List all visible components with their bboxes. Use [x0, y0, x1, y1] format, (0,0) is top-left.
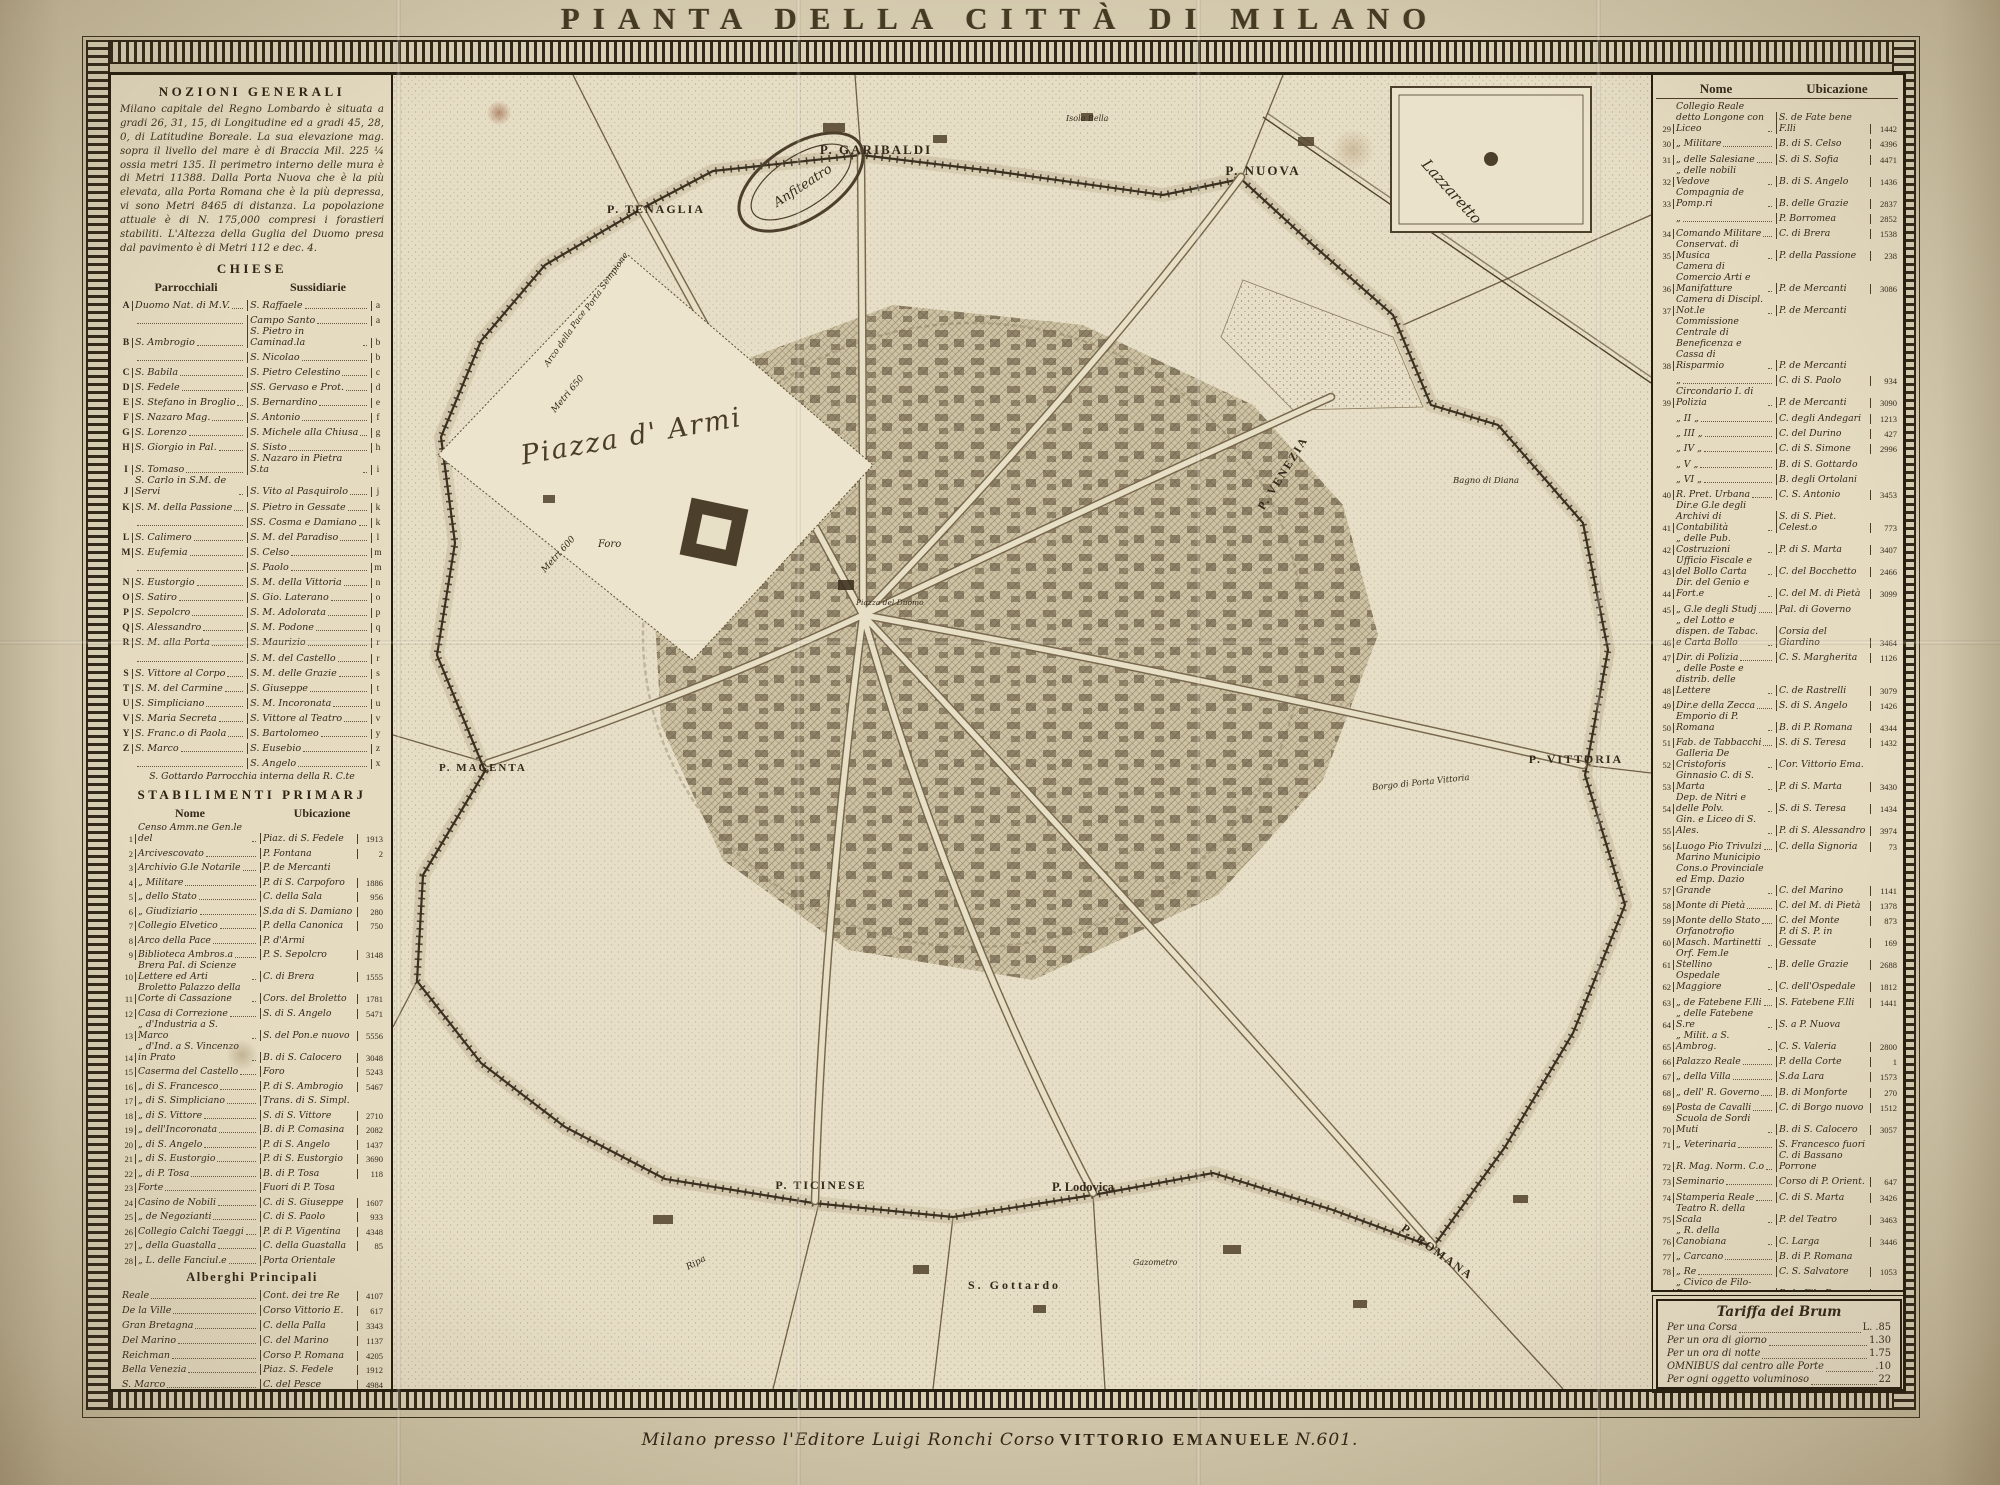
dotted-leader [1768, 615, 1772, 646]
stabilimento-nome: „ V „ [1676, 459, 1698, 470]
stabilimento-civico: 3079 [1870, 686, 1898, 696]
chiese-sussidiaria: S. M. Podone [250, 622, 314, 633]
albergo-civico: 617 [357, 1306, 384, 1316]
stabilimento-nome: „ della Guastalla [138, 1240, 216, 1251]
tariffa-row: Per un ora di giorno 1.30 [1667, 1335, 1891, 1348]
chiese-row: O S. Satiro S. Gio. Laterano o [120, 588, 384, 603]
stabilimento-civico: 3090 [1870, 398, 1898, 408]
stabilimento-ubicazione: C. del Durino [1776, 428, 1870, 439]
row-number: 59 [1656, 916, 1674, 926]
row-number: 68 [1656, 1088, 1674, 1098]
stabilimento-nome: Scuola de Sordi Muti [1676, 1113, 1766, 1135]
dotted-leader [1733, 1071, 1772, 1080]
row-number: 22 [120, 1169, 136, 1179]
chiese-subkey: t [371, 684, 384, 694]
map-label-lodovica-gate: P. Lodovica [1052, 1180, 1115, 1194]
stabilimento-ubicazione: P. de Mercanti [260, 862, 357, 873]
albergo-ubicazione: C. della Palla [260, 1320, 357, 1331]
right-row: 40 R. Pret. Urbana C. S. Antonio 3453 [1656, 485, 1898, 500]
stabilimento-nome: Orf. Fem.le Stellino [1676, 948, 1766, 970]
stabilimento-ubicazione: C. S. Antonio [1776, 489, 1870, 500]
chiese-subkey: p [371, 608, 384, 618]
stabilimenti-row: 27 „ della Guastalla C. della Guastalla … [120, 1237, 384, 1252]
stabilimento-ubicazione: C. della Guastalla [260, 1240, 357, 1251]
stabilimento-ubicazione: C. de Rastrelli [1776, 685, 1870, 696]
stabilimento-ubicazione: C. del Marino [1776, 885, 1870, 896]
stabilimento-nome: „ de Fatebene F.lli [1676, 997, 1762, 1008]
chiese-row: V S. Maria Secreta S. Vittore al Teatro … [120, 709, 384, 724]
tariffa-label: Per ogni oggetto voluminoso [1667, 1374, 1809, 1387]
stabilimento-nome: „ dello Stato [138, 891, 197, 902]
stabilimenti-row: 4 „ Militare P. di S. Carpoforo 1886 [120, 873, 384, 888]
stabilimento-ubicazione: S. a P. Nuova [1776, 1019, 1870, 1030]
stabilimento-civico: 1434 [1870, 804, 1898, 814]
stabilimenti-table: 1 Censo Amm.ne Gen.le del Piaz. di S. Fe… [120, 822, 384, 1266]
stabilimento-ubicazione: C. di S. Simone [1776, 443, 1870, 454]
stabilimento-ubicazione: C. S. Valeria [1776, 1041, 1870, 1052]
stabilimento-civico: 2800 [1870, 1042, 1898, 1052]
dotted-leader [213, 935, 256, 944]
chiese-parrocchiale: S. Calimero [135, 532, 192, 543]
stabilimento-civico: 3407 [1870, 545, 1898, 555]
dotted-leader [252, 960, 256, 980]
stabilimento-ubicazione: C. del M. di Pietà [1776, 900, 1870, 911]
right-row: 51 Fab. de Tabbacchi S. di S. Teresa 143… [1656, 733, 1898, 748]
dotted-leader [178, 1335, 256, 1344]
stabilimento-ubicazione: P. Borromea [1776, 213, 1870, 224]
dotted-leader [339, 668, 367, 677]
chiese-parrocchiale: S. Marco [135, 743, 179, 754]
right-row: 62 Ospedale Maggiore C. dell'Ospedale 18… [1656, 970, 1898, 992]
dotted-leader [342, 367, 367, 376]
stabilimento-civico: 1436 [1870, 177, 1898, 187]
dotted-leader [1768, 294, 1772, 314]
row-number: 32 [1656, 177, 1674, 187]
chiese-row: J S. Carlo in S.M. de Servi S. Vito al P… [120, 475, 384, 497]
dotted-leader [1768, 577, 1772, 597]
dotted-leader [1752, 489, 1772, 498]
stabilimento-nome: „ Militare [138, 877, 183, 888]
row-number: 14 [120, 1053, 136, 1063]
dotted-leader [1700, 459, 1772, 468]
stabilimento-civico: 1812 [1870, 982, 1898, 992]
dotted-leader [199, 891, 256, 900]
stabilimento-ubicazione: P. de Mercanti [1776, 283, 1870, 294]
chiese-subkey: z [371, 744, 384, 754]
dotted-leader [1768, 770, 1772, 790]
dotted-leader [195, 1320, 256, 1329]
dotted-leader [240, 1066, 256, 1075]
row-number: 72 [1656, 1162, 1674, 1172]
chiese-sussidiaria: S. M. Adolorata [250, 607, 326, 618]
chiese-subkey: k [371, 518, 384, 528]
row-number: 23 [120, 1183, 136, 1193]
dotted-leader [346, 382, 367, 391]
dotted-leader [204, 1139, 256, 1148]
row-number: 33 [1656, 199, 1674, 209]
albergo-ubicazione: Piaz. S. Fedele [260, 1364, 357, 1375]
albergo-row: De la Ville Corso Vittorio E. 617 [120, 1301, 384, 1316]
row-number: 73 [1656, 1177, 1674, 1187]
chiese-parrocchiale: S. Vittore al Corpo [135, 668, 225, 679]
stabilimenti-row: 22 „ di P. Tosa B. di P. Tosa 118 [120, 1164, 384, 1179]
chiese-sussidiaria: S. Bernardino [250, 397, 317, 408]
right-row: „ C. di S. Paolo 934 [1656, 371, 1898, 386]
dotted-leader [1768, 316, 1772, 369]
dotted-leader [1768, 711, 1772, 731]
stabilimento-ubicazione: B. delle Grazie [1776, 959, 1870, 970]
chiese-subkey: x [371, 759, 384, 769]
chiese-key: N [120, 578, 133, 588]
right-row: „ P. Borromea 2852 [1656, 209, 1898, 224]
stabilimento-nome: Censo Amm.ne Gen.le del [138, 822, 250, 844]
chiese-row: B S. Ambrogio S. Pietro in Caminad.la b [120, 326, 384, 348]
chiese-sussidiaria: S. Vito al Pasquirolo [250, 486, 348, 497]
stabilimento-ubicazione: S. di S. Teresa [1776, 737, 1870, 748]
chiese-sussidiaria: S. Michele alla Chiusa [250, 427, 358, 438]
dotted-leader [237, 397, 243, 406]
chiese-key: E [120, 398, 133, 408]
frame-band-left [86, 40, 110, 1410]
right-row: 36 Camera di Comercio Arti e Manifatture… [1656, 261, 1898, 294]
chiese-table: A Duomo Nat. di M.V. S. Raffaele a Campo… [120, 296, 384, 770]
dotted-leader [229, 1255, 256, 1264]
stabilimento-civico: 2082 [357, 1125, 384, 1135]
right-row: 69 Posta de Cavalli C. di Borgo nuovo 15… [1656, 1098, 1898, 1113]
right-row: „ III „ C. del Durino 427 [1656, 424, 1898, 439]
tariffa-label: Per una Corsa [1667, 1322, 1737, 1335]
dotted-leader [1768, 239, 1772, 259]
stabilimento-ubicazione: P. del Teatro [1776, 1214, 1870, 1225]
chiese-subkey: m [371, 563, 384, 573]
chiese-subkey: h [371, 443, 384, 453]
row-number: 55 [1656, 826, 1674, 836]
row-number: 77 [1656, 1252, 1674, 1262]
row-number: 1 [120, 834, 136, 844]
right-row: 67 „ della Villa S.da Lara 1573 [1656, 1067, 1898, 1082]
right-row: 56 Luogo Pio Trivulzi C. della Signoria … [1656, 836, 1898, 851]
right-row: 39 Circondario I. di Polizia P. de Merca… [1656, 386, 1898, 408]
stabilimento-ubicazione: S. Francesco fuori [1776, 1139, 1870, 1150]
dotted-leader [206, 698, 243, 707]
map-label-magenta-gate: P. MAGENTA [439, 762, 527, 774]
stabilimento-civico: 1913 [357, 834, 384, 844]
tariffa-value: .10 [1875, 1361, 1891, 1374]
right-row: 66 Palazzo Reale P. della Corte 1 [1656, 1052, 1898, 1067]
stabilimenti-row: 15 Caserma del Castello Foro 5243 [120, 1063, 384, 1078]
dotted-leader [350, 486, 367, 495]
stabilimento-ubicazione: Porta Orientale [260, 1255, 357, 1266]
stabilimento-civico: 1141 [1870, 886, 1898, 896]
dotted-leader [188, 1364, 256, 1373]
chiese-subkey: a [371, 301, 384, 311]
stabilimenti-column-headers: Nome Ubicazione [120, 806, 384, 821]
imprint-corso: VITTORIO EMANUELE [1060, 1430, 1292, 1449]
dotted-leader [1768, 814, 1772, 834]
chiese-parrocchiale: S. Satiro [135, 592, 177, 603]
stabilimento-nome: Camera di Discipl. Not.le [1676, 294, 1766, 316]
chiese-key: T [120, 684, 133, 694]
dotted-leader [1723, 138, 1772, 147]
dotted-leader [1705, 428, 1772, 437]
chiese-row: G S. Lorenzo S. Michele alla Chiusa g [120, 423, 384, 438]
chiese-row: Y S. Franc.o di Paola S. Bartolomeo y [120, 724, 384, 739]
stabilimento-nome: „ IV „ [1676, 443, 1702, 454]
chiese-key: Q [120, 623, 133, 633]
row-number: 37 [1656, 306, 1674, 316]
tariffa-label: OMNIBUS dal centro alle Porte [1667, 1361, 1824, 1374]
right-row: 42 „ delle Pub. Costruzioni P. di S. Mar… [1656, 533, 1898, 555]
stabilimento-civico: 647 [1870, 1177, 1898, 1187]
stabilimento-nome: Fab. de Tabbacchi [1676, 737, 1761, 748]
chiese-row: M S. Eufemia S. Celso m [120, 543, 384, 558]
stabilimento-nome: Seminario [1676, 1176, 1724, 1187]
stabilimento-civico: 5243 [357, 1067, 384, 1077]
stabilimento-nome: „ Giudiziario [138, 906, 198, 917]
stabilimento-civico: 750 [357, 921, 384, 931]
right-row: „ II „ C. degli Andegari 1213 [1656, 408, 1898, 423]
dotted-leader [220, 920, 256, 929]
row-number: 16 [120, 1082, 136, 1092]
stabilimento-nome: „ III „ [1676, 428, 1703, 439]
albergo-ubicazione: Corso Vittorio E. [260, 1305, 357, 1316]
stabilimento-civico: 3086 [1870, 284, 1898, 294]
stabilimento-nome: „ dell'Incoronata [138, 1124, 217, 1135]
map-label-s-gottardo: S. Gottardo [968, 1278, 1061, 1292]
stabilimento-civico: 3453 [1870, 490, 1898, 500]
stabilimento-ubicazione: P. della Canonica [260, 920, 357, 931]
right-row: 74 Stamperia Reale C. di S. Marta 3426 [1656, 1187, 1898, 1202]
row-number: 56 [1656, 842, 1674, 852]
dotted-leader [252, 1041, 256, 1061]
stabilimento-ubicazione: S. di S. Teresa [1776, 803, 1870, 814]
chiese-key: O [120, 593, 133, 603]
row-number: 29 [1656, 124, 1674, 134]
row-number: 39 [1656, 398, 1674, 408]
right-row: 34 Comando Militare C. di Brera 1538 [1656, 224, 1898, 239]
dotted-leader [220, 1081, 256, 1090]
nozioni-heading: NOZIONI GENERALI [120, 84, 384, 100]
stabilimento-nome: „ del Lotto e dispen. de Tabac. e Carta … [1676, 615, 1766, 648]
stabilimento-ubicazione: B. di S. Gottardo [1776, 459, 1870, 470]
stabilimento-ubicazione: C. S. Salvatore [1776, 1266, 1870, 1277]
dotted-leader [1768, 948, 1772, 968]
chiese-row: S. Angelo x [120, 754, 384, 769]
chiese-subkey: a [371, 316, 384, 326]
dotted-leader [137, 570, 243, 571]
dotted-leader [317, 315, 367, 324]
stabilimento-nome: Commissione Centrale di Beneficenza e Ca… [1676, 316, 1766, 371]
stabilimenti-row: 3 Archivio G.le Notarile P. de Mercanti [120, 859, 384, 874]
stabilimento-ubicazione: B. di P. Romana [1776, 1251, 1870, 1262]
row-number: 45 [1656, 605, 1674, 615]
stabilimento-civico: 2710 [357, 1111, 384, 1121]
chiese-subkey: f [371, 413, 384, 423]
map-label-tenaglia-gate: P. TENAGLIA [607, 202, 705, 216]
stabilimento-civico: 1512 [1870, 1103, 1898, 1113]
stabilimento-ubicazione: P. de Filo-Dram. [1776, 1288, 1870, 1292]
dotted-leader [1759, 604, 1773, 613]
stabilimenti-row: 17 „ di S. Simpliciano Trans. di S. Simp… [120, 1092, 384, 1107]
stabilimento-civico: 85 [357, 1241, 384, 1251]
chiese-row: Z S. Marco S. Eusebio z [120, 739, 384, 754]
chiese-sussidiaria: S. M. Incoronata [250, 698, 331, 709]
stabilimento-civico: 270 [1870, 1088, 1898, 1098]
chiese-parrocchiale: S. Lorenzo [135, 427, 187, 438]
right-row: „ IV „ C. di S. Simone 2996 [1656, 439, 1898, 454]
dotted-leader [137, 323, 243, 324]
dotted-leader [1683, 375, 1772, 384]
tariffa-row: OMNIBUS dal centro alle Porte .10 [1667, 1361, 1891, 1374]
stabilimento-civico: 1555 [357, 972, 384, 982]
right-row: 49 Dir.e della Zecca S. di S. Angelo 142… [1656, 696, 1898, 711]
stabilimento-civico: 3426 [1870, 1193, 1898, 1203]
stabilimento-civico: 1538 [1870, 229, 1898, 239]
page-title: PIANTA DELLA CITTÀ DI MILANO [0, 1, 2000, 37]
chiese-sussidiaria: S. Pietro in Gessate [250, 502, 346, 513]
row-number: 15 [120, 1067, 136, 1077]
dotted-leader [1768, 101, 1772, 132]
stabilimento-nome: Conservat. di Musica [1676, 239, 1766, 261]
dotted-leader [340, 532, 367, 541]
stabilimento-ubicazione: C. del M. di Pietà [1776, 588, 1870, 599]
stabilimenti-row: 13 „ d'Industria a S. Marco S. del Pon.e… [120, 1019, 384, 1041]
stabilimento-nome: „ di S. Simpliciano [138, 1095, 225, 1106]
albergo-civico: 3343 [357, 1321, 384, 1331]
stabilimento-nome: Camera di Comercio Arti e Manifatture [1676, 261, 1766, 294]
row-number: 25 [120, 1212, 136, 1222]
stabilimento-ubicazione: Trans. di S. Simpl. [260, 1095, 357, 1106]
dotted-leader [137, 766, 243, 767]
tariffa-label: Per un ora di giorno [1667, 1335, 1767, 1348]
chiese-sussidiaria: S. Gio. Laterano [250, 592, 329, 603]
dotted-leader [1766, 1161, 1772, 1170]
stabilimento-nome: „ della Villa [1676, 1071, 1731, 1082]
stabilimento-ubicazione: S. di S. Angelo [260, 1008, 357, 1019]
dotted-leader [1683, 213, 1772, 222]
tariffa-value: 22 [1879, 1374, 1891, 1387]
chiese-key: H [120, 443, 133, 453]
chiese-sussidiaria: S. M. del Paradiso [250, 532, 338, 543]
dotted-leader [1768, 926, 1772, 946]
stabilimento-nome: Broletto Palazzo della Corte di Cassazio… [138, 982, 250, 1004]
dotted-leader [1768, 261, 1772, 292]
stabilimento-ubicazione: C. di Brera [1776, 228, 1870, 239]
chiese-parrocchiale: S. Nazaro Mag. [135, 412, 210, 423]
stabilimento-nome: Marino Municipio Cons.o Provinciale ed E… [1676, 852, 1766, 896]
stabilimento-civico: 3148 [357, 950, 384, 960]
chiese-row: E S. Stefano in Broglio S. Bernardino e [120, 393, 384, 408]
chiese-subkey: s [371, 669, 384, 679]
right-row: 50 Emporio di P. Romana B. di P. Romana … [1656, 711, 1898, 733]
chiese-parrocchiale: S. Giorgio in Pal. [135, 442, 217, 453]
stabilimento-civico: 1437 [357, 1140, 384, 1150]
dotted-leader [230, 1008, 256, 1017]
dotted-leader [302, 352, 367, 361]
stabilimento-nome: Arco della Pace [138, 935, 211, 946]
stabilimento-nome: „ delle nobili Vedove [1676, 165, 1766, 187]
stabilimento-nome: Posta de Cavalli [1676, 1102, 1751, 1113]
map-label-piazza-duomo: Piazza del Duomo [855, 598, 924, 607]
chiese-row: N S. Eustorgio S. M. della Vittoria n [120, 573, 384, 588]
chiese-row: I S. Tomaso S. Nazaro in Pietra S.ta i [120, 453, 384, 475]
row-number: 46 [1656, 638, 1674, 648]
row-number: 11 [120, 994, 136, 1004]
stabilimenti-row: 28 „ L. delle Fanciul.e Porta Orientale [120, 1251, 384, 1266]
stabilimenti-row: 1 Censo Amm.ne Gen.le del Piaz. di S. Fe… [120, 822, 384, 844]
row-number: 74 [1656, 1193, 1674, 1203]
chiese-key: I [120, 465, 133, 475]
row-number: 43 [1656, 567, 1674, 577]
stabilimento-nome: Casino de Nobili [138, 1197, 216, 1208]
stabilimento-nome: Forte [138, 1182, 163, 1193]
stabilimento-ubicazione: C. S. Margherita [1776, 652, 1870, 663]
dotted-leader [182, 382, 243, 391]
row-number: 18 [120, 1111, 136, 1121]
dotted-leader [228, 728, 243, 737]
stabilimento-ubicazione: P. della Passione [1776, 250, 1870, 261]
stabilimenti-row: 25 „ de Negozianti C. di S. Paolo 933 [120, 1208, 384, 1223]
dotted-leader [1763, 737, 1772, 746]
chiese-row: S. Nicolao b [120, 348, 384, 363]
dotted-leader [137, 661, 243, 662]
tariffa-value: 1.30 [1869, 1335, 1891, 1348]
stabilimento-nome: „ L. delle Fanciul.e [138, 1255, 227, 1266]
stabilimento-ubicazione: B. di P. Romana [1776, 722, 1870, 733]
stabilimento-civico: 2996 [1870, 444, 1898, 454]
dotted-leader [179, 592, 243, 601]
row-number: 5 [120, 892, 136, 902]
dotted-leader [191, 1168, 256, 1177]
dotted-leader [310, 683, 367, 692]
row-number: 31 [1656, 155, 1674, 165]
dotted-leader [1768, 1008, 1772, 1028]
chiese-row: Campo Santo a [120, 311, 384, 326]
dotted-leader [218, 1197, 256, 1206]
stabilimento-nome: Collegio Elvetico [138, 920, 218, 931]
stabilimento-nome: Dep. de Nitri e delle Polv. [1676, 792, 1766, 814]
dotted-leader [1768, 970, 1772, 990]
right-row: 72 R. Mag. Norm. C.o C. di Bassano Porro… [1656, 1150, 1898, 1172]
chiese-key: C [120, 368, 133, 378]
albergo-nome: S. Marco [122, 1379, 165, 1389]
tariffa-box: Tariffa dei Brum Per una Corsa L. .85 Pe… [1656, 1299, 1902, 1389]
stabilimento-ubicazione: C. del Monte [1776, 915, 1870, 926]
chiese-row: K S. M. della Passione S. Pietro in Gess… [120, 497, 384, 512]
row-number: 34 [1656, 229, 1674, 239]
row-number: 57 [1656, 886, 1674, 896]
stabilimento-nome: Monte dello Stato [1676, 915, 1760, 926]
dotted-leader [197, 577, 243, 586]
right-row: 71 „ Veterinaria S. Francesco fuori [1656, 1135, 1898, 1150]
right-row: 61 Orf. Fem.le Stellino B. delle Grazie … [1656, 948, 1898, 970]
chiese-row: A Duomo Nat. di M.V. S. Raffaele a [120, 296, 384, 311]
albergo-row: Reale Cont. dei tre Re 4107 [120, 1287, 384, 1302]
right-index-panel: Nome Ubicazione 29 Collegio Reale detto … [1651, 75, 1903, 1292]
right-row: 37 Camera di Discipl. Not.le P. de Merca… [1656, 294, 1898, 316]
albergo-nome: Reichman [122, 1350, 170, 1361]
map-label-isola-bella: Isola Bella [1065, 114, 1109, 123]
stabilimento-nome: Casa di Correzione [138, 1008, 228, 1019]
stabilimento-nome: Caserma del Castello [138, 1066, 238, 1077]
stabilimento-ubicazione: C. di Brera [260, 971, 357, 982]
stabilimento-nome: Brera Pal. di Scienze Lettere ed Arti [138, 960, 250, 982]
right-row: 33 Compagnia de Pomp.ri B. delle Grazie … [1656, 187, 1898, 209]
dotted-leader [217, 1153, 256, 1162]
stabilimento-civico: 1781 [357, 994, 384, 1004]
dotted-leader [363, 326, 367, 346]
dotted-leader [185, 877, 256, 886]
